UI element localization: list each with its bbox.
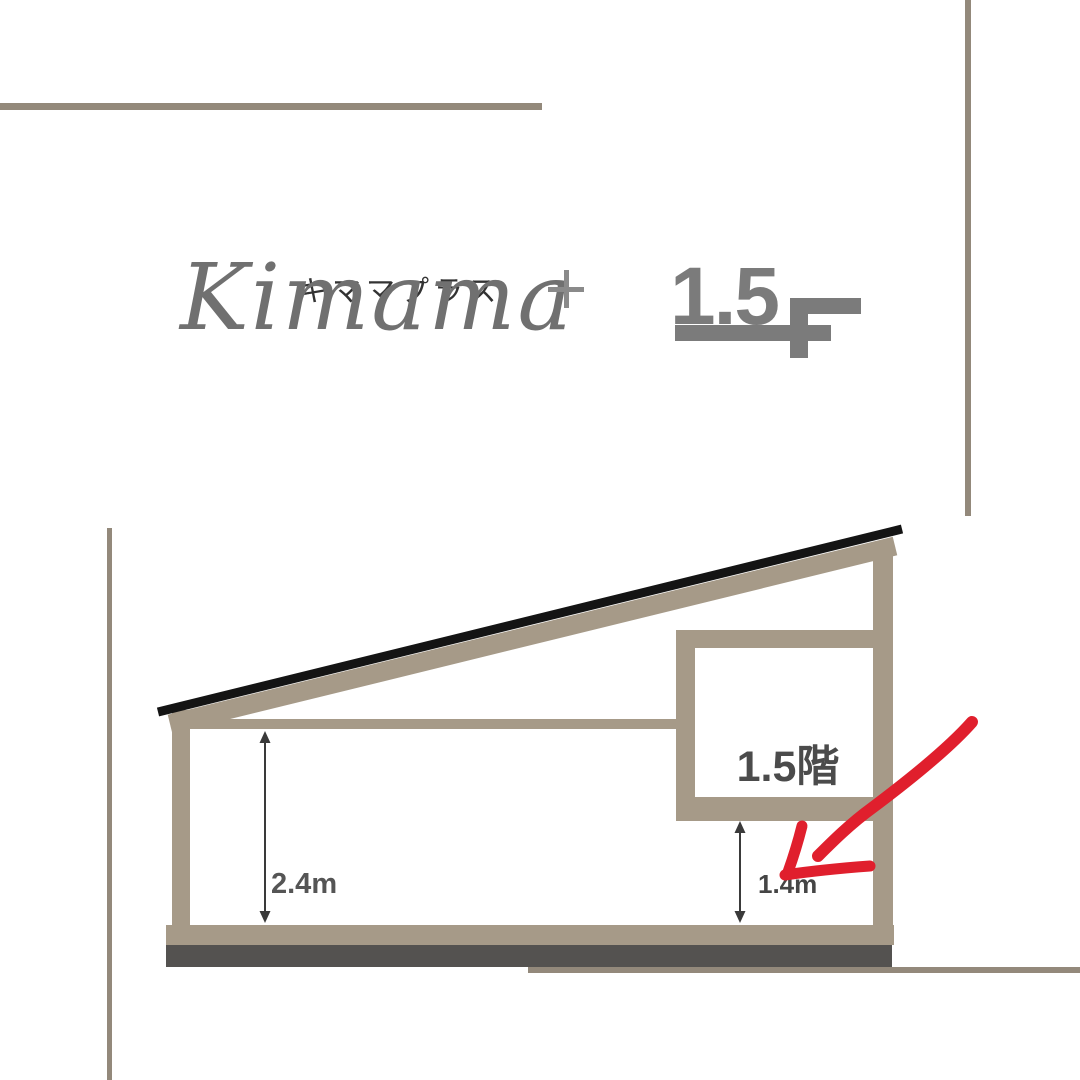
arrowhead-down-icon bbox=[260, 911, 271, 923]
loft-top-edge bbox=[676, 630, 873, 648]
red-arrow-barb-upper bbox=[788, 826, 802, 872]
foundation bbox=[166, 945, 892, 967]
arrowhead-down-icon bbox=[735, 911, 746, 923]
poster-canvas: キママプラス Kimama 1.5 bbox=[0, 0, 1080, 1080]
dimension-arrow-2-4m bbox=[260, 731, 271, 923]
ceiling-line bbox=[183, 719, 695, 729]
loft-label: 1.5階 bbox=[737, 743, 840, 791]
loft-left-wall bbox=[676, 630, 695, 821]
red-arrow-shaft bbox=[818, 722, 972, 856]
loft-floor bbox=[676, 797, 873, 821]
roof-top-line bbox=[158, 529, 902, 712]
arrowhead-up-icon bbox=[735, 821, 746, 833]
ground-floor-slab bbox=[166, 925, 894, 945]
dimension-arrow-1-4m bbox=[735, 821, 746, 923]
main-height-label: 2.4m bbox=[271, 868, 337, 900]
left-wall bbox=[172, 710, 190, 945]
house-cross-section-diagram: 1.5階 2.4m 1.4m bbox=[0, 0, 1080, 1080]
arrowhead-up-icon bbox=[260, 731, 271, 743]
right-wall bbox=[873, 548, 893, 945]
red-arrow-barb-right bbox=[785, 866, 870, 875]
